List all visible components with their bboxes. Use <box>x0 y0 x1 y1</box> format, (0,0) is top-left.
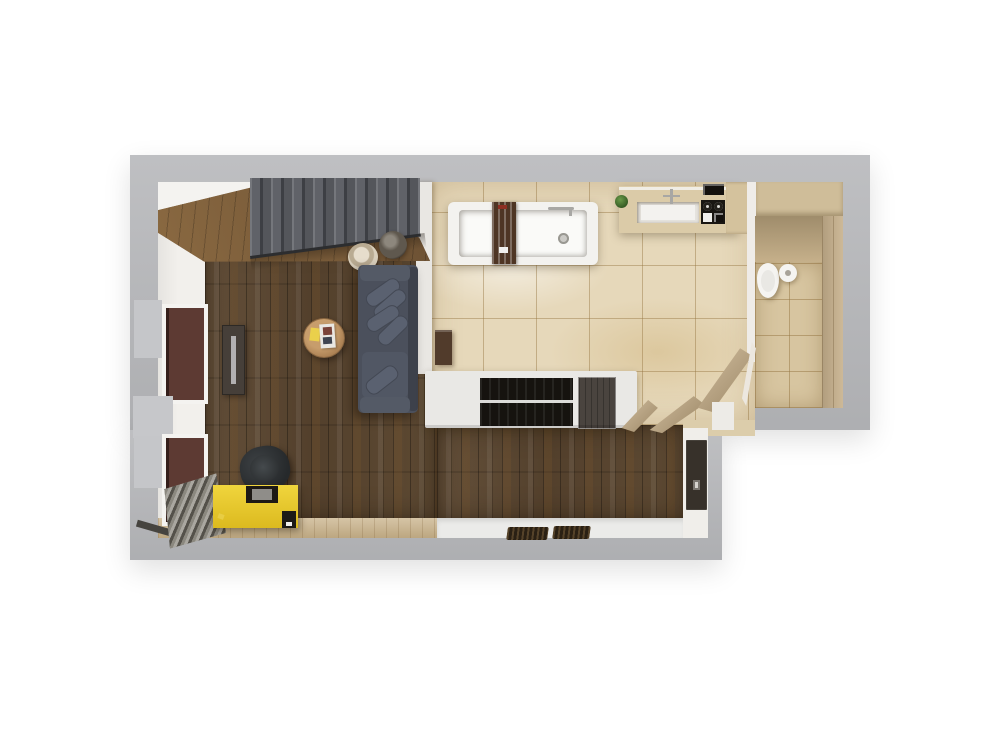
magazine-cover-art <box>323 327 333 336</box>
window-sill-block-2 <box>134 436 162 488</box>
oven-hood-strip <box>703 184 724 195</box>
monitor-screen <box>252 489 272 500</box>
wall-cap-mid <box>133 396 173 438</box>
stove-burner-1 <box>703 202 712 211</box>
entrance-door-handle <box>693 480 700 490</box>
tv-console-slot <box>231 336 236 384</box>
window-1-reveal <box>166 308 204 400</box>
island-shelf-bottom <box>480 403 573 426</box>
island-slab-edge <box>425 425 637 428</box>
sofa-armrest-bottom <box>360 397 410 413</box>
doormat-2 <box>552 526 591 539</box>
bathroom-right-wall <box>822 216 843 408</box>
caddy-label <box>498 205 507 209</box>
doormat-1 <box>506 527 549 540</box>
stove-pad-white <box>703 213 712 222</box>
bath-caddy-tray <box>492 202 516 264</box>
island-shelf-top <box>480 378 573 400</box>
magazine-cover-art2 <box>323 337 332 345</box>
stove-knob-black <box>714 213 723 222</box>
island-cabinet <box>578 377 616 429</box>
stove-burner-2 <box>714 202 723 211</box>
kitchen-faucet-bar <box>663 195 680 197</box>
kitchen-upper-cabinet <box>755 182 843 216</box>
caddy-soap <box>499 247 508 253</box>
sofa-backrest <box>408 267 418 411</box>
round-vase <box>379 231 407 259</box>
kitchen-sink-basin <box>641 205 695 220</box>
toilet-cistern-button <box>785 270 791 276</box>
bathtub-drain <box>558 233 569 244</box>
desk-side-box-slot <box>286 522 292 526</box>
bathtub-faucet-spout <box>569 207 572 216</box>
entrance-door <box>686 440 707 510</box>
sofa-armrest-top <box>360 265 410 281</box>
office-chair-seat <box>250 455 279 482</box>
bathtub-basin <box>459 210 587 257</box>
plant-pot <box>615 195 628 208</box>
hallway-floor <box>437 425 685 520</box>
vestibule-corner-wall <box>712 402 734 430</box>
window-sill-block-1 <box>134 300 162 358</box>
kitchen-side-cabinet <box>435 330 452 365</box>
floor-plan-render <box>0 0 1000 750</box>
toilet-bowl-inner <box>761 270 775 292</box>
